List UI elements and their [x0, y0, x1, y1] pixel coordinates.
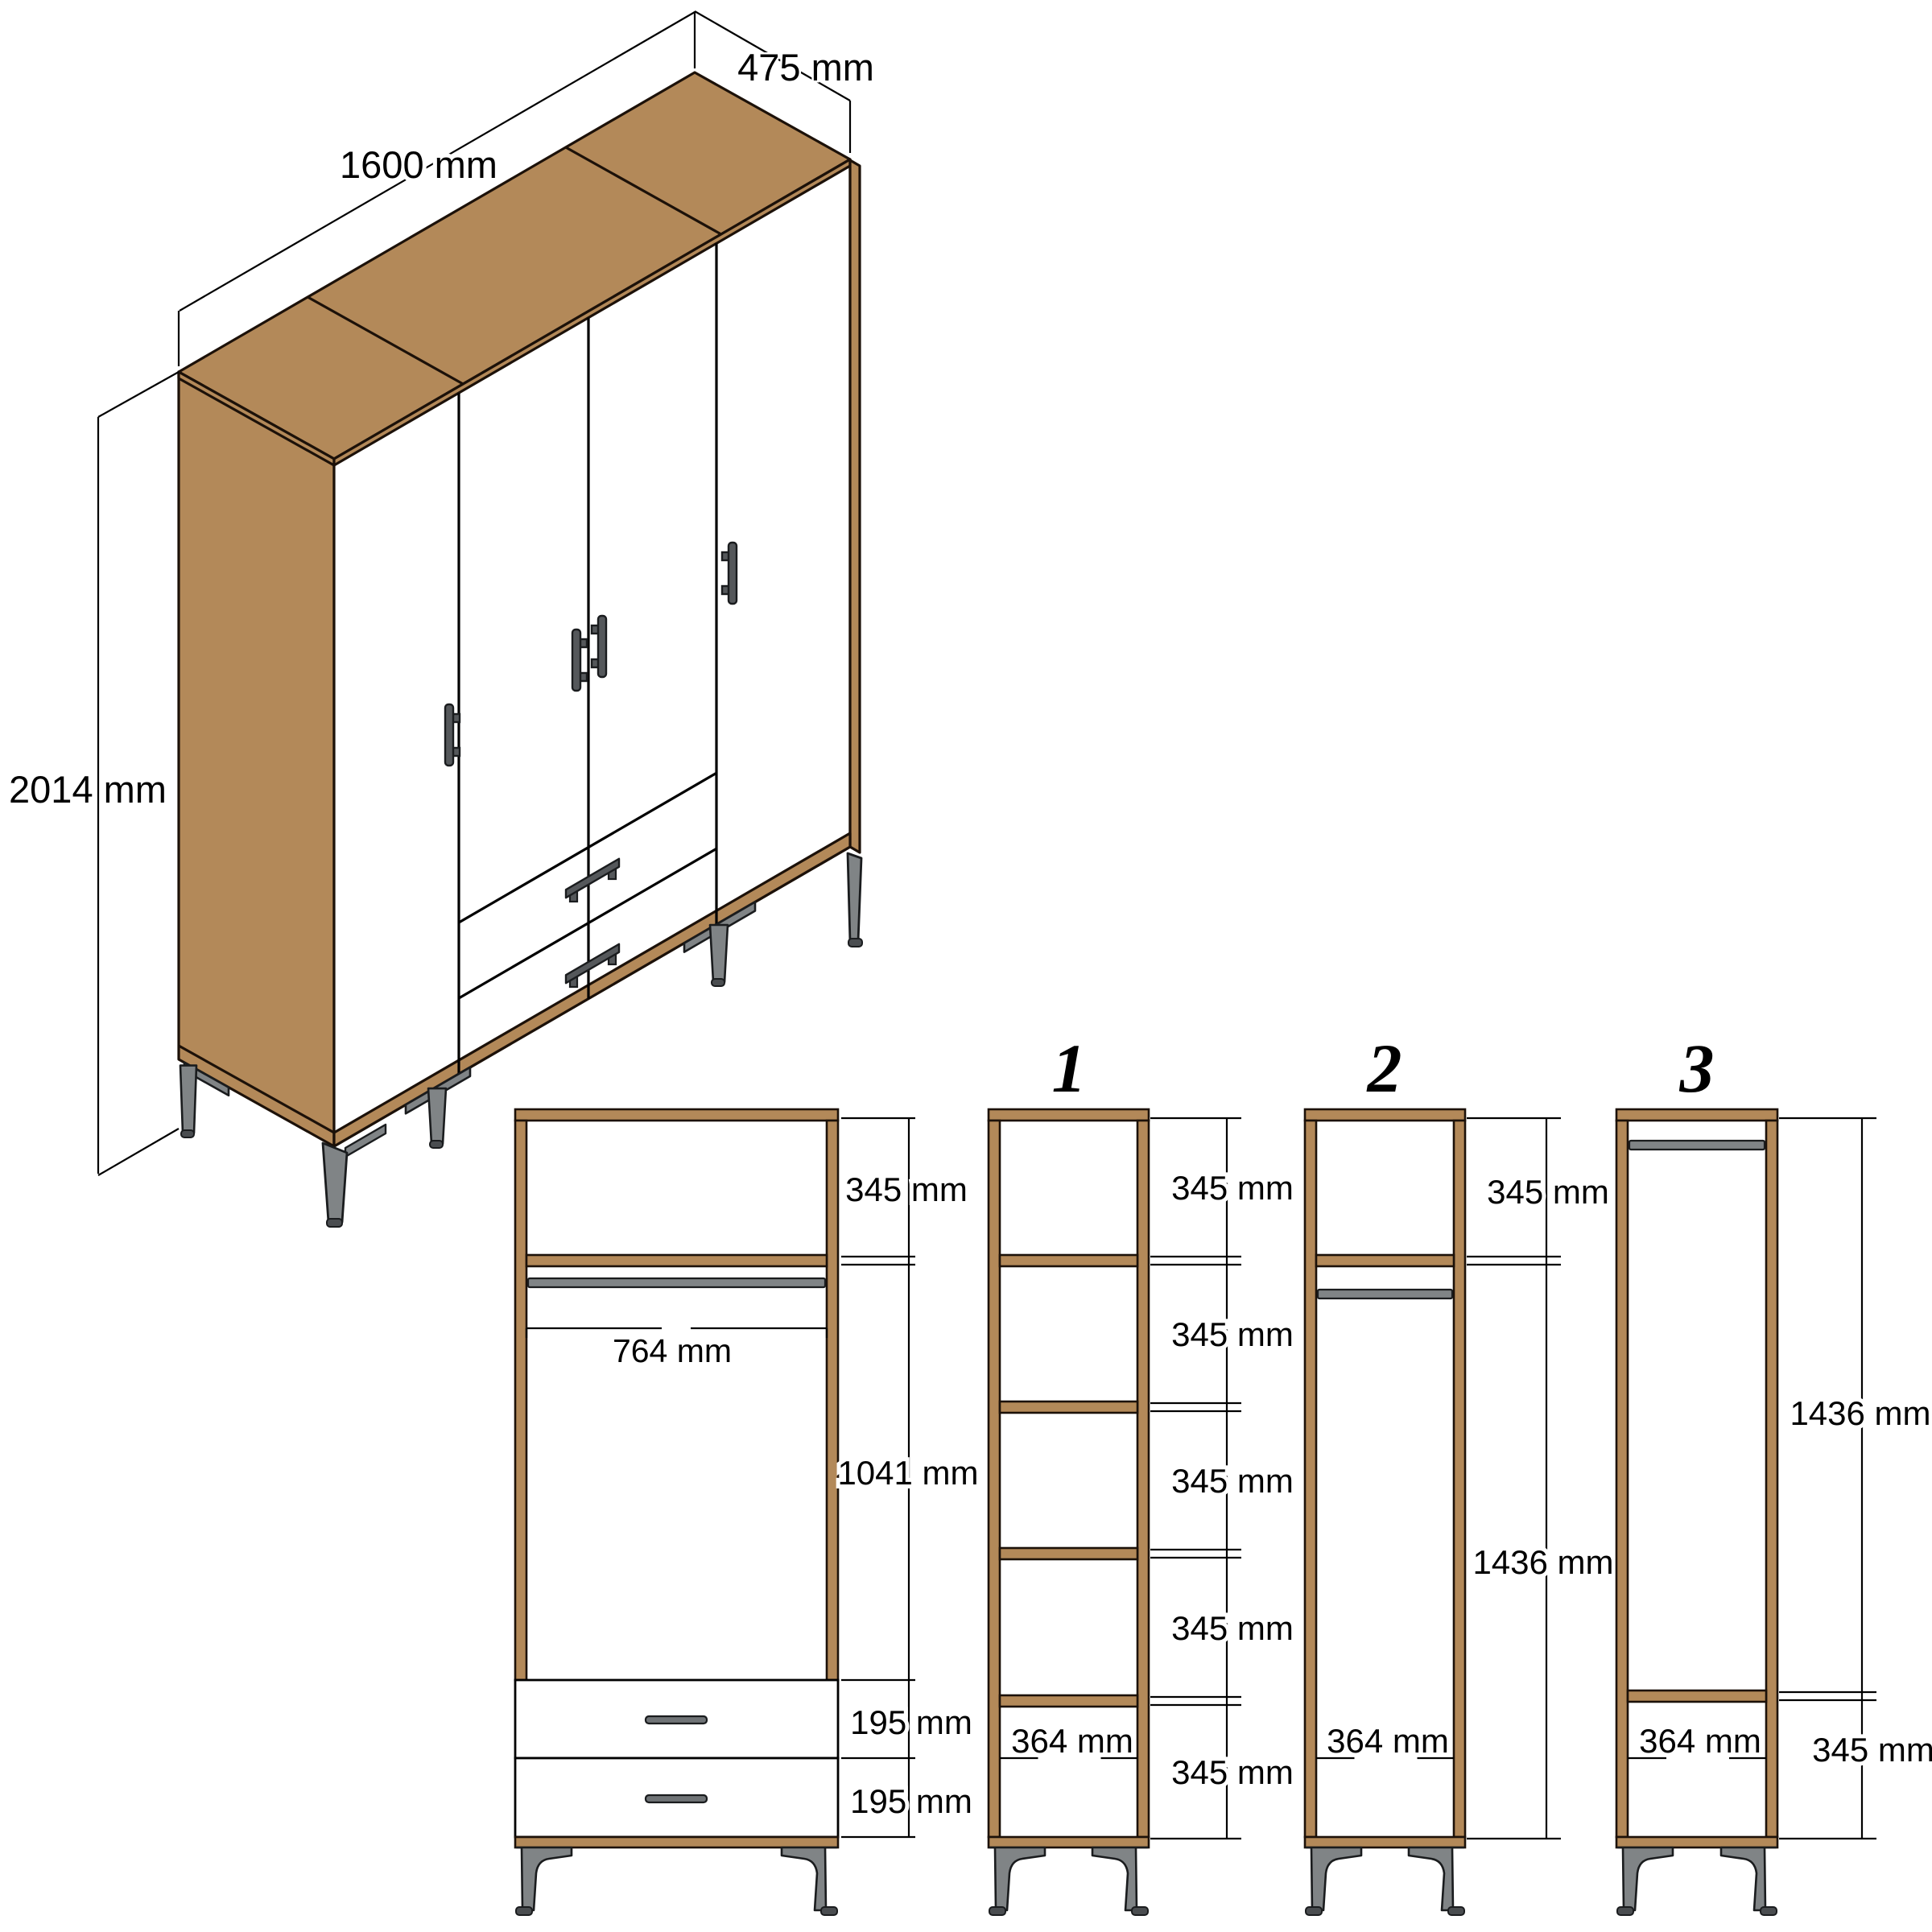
svg-text:364 mm: 364 mm [1639, 1722, 1761, 1760]
svg-text:195 mm: 195 mm [850, 1703, 972, 1741]
svg-text:345 mm: 345 mm [1812, 1731, 1932, 1769]
svg-text:1436 mm: 1436 mm [1790, 1394, 1930, 1432]
svg-text:364 mm: 364 mm [1327, 1722, 1449, 1760]
svg-text:1041 mm: 1041 mm [837, 1454, 978, 1492]
svg-text:2014 mm: 2014 mm [9, 768, 167, 811]
svg-text:2: 2 [1366, 1030, 1402, 1107]
svg-text:345 mm: 345 mm [1487, 1173, 1609, 1211]
svg-text:345 mm: 345 mm [845, 1170, 968, 1208]
svg-text:3: 3 [1679, 1030, 1715, 1107]
svg-text:195 mm: 195 mm [850, 1782, 972, 1820]
svg-text:1600 mm: 1600 mm [340, 143, 497, 186]
svg-text:345 mm: 345 mm [1171, 1462, 1294, 1500]
svg-text:764 mm: 764 mm [613, 1332, 732, 1369]
svg-text:1436 mm: 1436 mm [1472, 1543, 1613, 1581]
svg-text:1: 1 [1052, 1030, 1087, 1107]
svg-text:475 mm: 475 mm [737, 46, 874, 89]
svg-text:364 mm: 364 mm [1011, 1722, 1133, 1760]
svg-text:345 mm: 345 mm [1171, 1315, 1294, 1353]
svg-text:345 mm: 345 mm [1171, 1753, 1294, 1791]
svg-text:345 mm: 345 mm [1171, 1609, 1294, 1647]
svg-text:345 mm: 345 mm [1171, 1169, 1294, 1207]
